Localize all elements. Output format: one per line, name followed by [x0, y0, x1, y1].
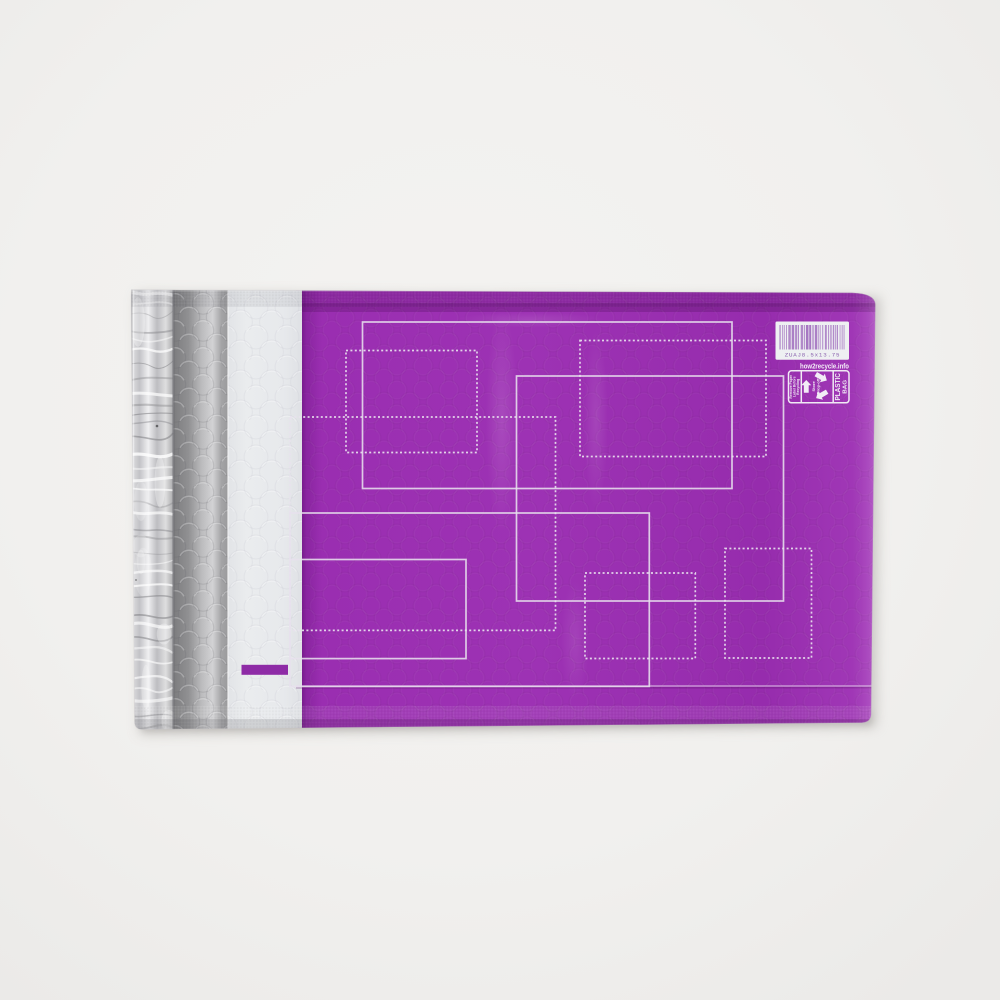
svg-text:how2recycle.info: how2recycle.info [800, 363, 849, 370]
svg-text:BAG: BAG [843, 380, 849, 394]
svg-text:Drop-off: Drop-off [816, 378, 821, 394]
svg-text:ZUAJ8.5x13.75: ZUAJ8.5x13.75 [785, 352, 841, 359]
svg-text:Recycling: Recycling [796, 379, 800, 395]
svg-text:PLASTIC: PLASTIC [833, 373, 842, 401]
